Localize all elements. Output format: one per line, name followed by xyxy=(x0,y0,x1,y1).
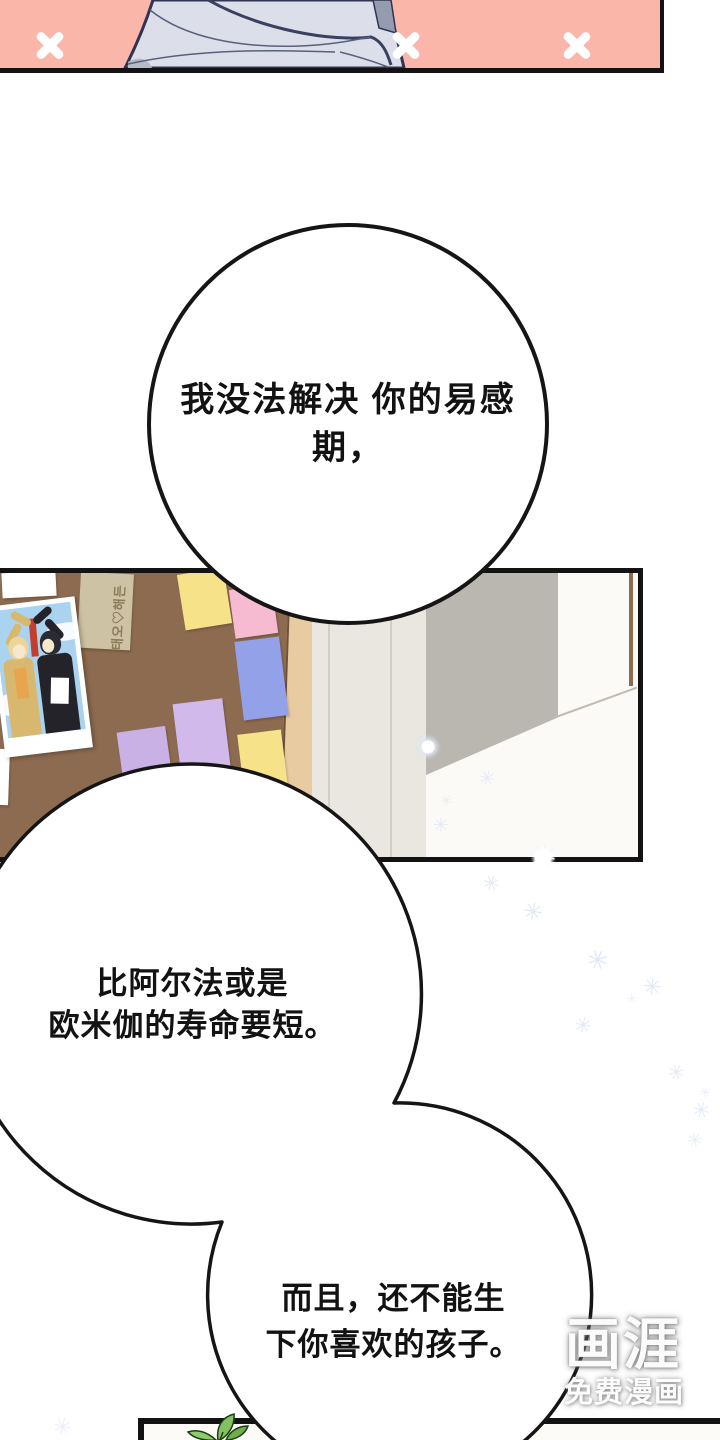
panel-top-pink xyxy=(0,0,664,73)
wall-edge-line xyxy=(556,687,637,718)
sticky-note-periwinkle xyxy=(234,637,288,721)
x-mark-icon xyxy=(560,28,594,62)
photo-corner xyxy=(1,571,56,599)
white-dot-sparkle xyxy=(422,741,435,754)
speech-bubble-2-text: 比阿尔法或是 欧米伽的寿命要短。 xyxy=(20,963,365,1047)
speech-bubble-3-text: 而且，还不能生 下你喜欢的孩子。 xyxy=(221,1276,566,1368)
x-mark-icon xyxy=(33,28,67,62)
watermark-caption: 免费漫画 xyxy=(556,1369,692,1411)
sparkle-icon xyxy=(663,1060,688,1087)
speech-bubble-1: 我没法解决 你的易感期， xyxy=(147,223,549,625)
x-mark-icon xyxy=(389,28,423,62)
speech-bubble-1-text: 我没法解决 你的易感期， xyxy=(151,376,545,472)
door-frame-line xyxy=(629,573,633,686)
note-handwriting: 태오♡해든 xyxy=(106,584,128,651)
plant-leaf-icon xyxy=(182,1413,264,1440)
handwritten-note: 태오♡해든 xyxy=(77,572,134,651)
photo-image xyxy=(0,602,86,739)
comic-page: 태오♡해든 xyxy=(0,0,720,1440)
sparkle-icon xyxy=(682,1129,706,1154)
wall-shadow xyxy=(426,573,558,775)
dark-figure-shirt xyxy=(51,678,69,704)
sparkle-icon xyxy=(689,1098,712,1123)
